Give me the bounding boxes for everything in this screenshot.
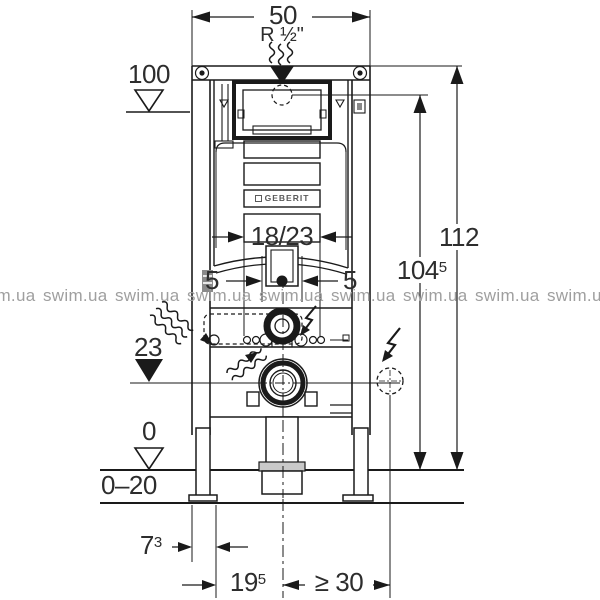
dim-supply-height-base: 104	[397, 255, 439, 285]
brand-logo: GEBERIT	[244, 190, 320, 207]
level-marker-0	[135, 448, 163, 469]
dim-supply-height-sup: 5	[439, 259, 447, 276]
drain-socket	[262, 471, 302, 494]
concealed-cistern	[214, 80, 365, 287]
watermark-text: swim.ua	[331, 287, 395, 304]
level-marker-23	[135, 359, 163, 382]
technical-drawing: 50 R ½" 100 112 1045 18/23 5 5 23 0 0–20…	[0, 0, 600, 600]
dim-leg-offset-base: 7	[140, 530, 154, 560]
water-connection-circle-icon	[272, 85, 292, 105]
left-foot	[189, 495, 217, 501]
dim-panel-label: 18/23	[246, 223, 318, 249]
valve-symbol-left	[220, 100, 228, 107]
drain-pipe	[266, 417, 298, 464]
level-markers	[135, 90, 163, 469]
dim-clearance-label: ≥ 30	[305, 569, 373, 595]
drain-socket-lip	[259, 462, 305, 471]
watermark-text: swim.ua	[403, 287, 467, 304]
electrical-connection-icon	[377, 328, 403, 394]
supply-thread-label: R ½"	[240, 25, 324, 45]
wc-outlet-bend	[247, 357, 317, 409]
brand-logo-text: GEBERIT	[265, 194, 310, 203]
dim-outlet-offset-sup: 5	[258, 571, 266, 588]
dim-zero-label: 0	[135, 418, 163, 444]
dim-100-label: 100	[121, 61, 177, 87]
electrical-bolt-icon	[300, 306, 316, 336]
dim-leg-offset-label: 73	[130, 532, 172, 558]
watermark-text: swim.ua	[547, 287, 600, 304]
watermark-text: swim.ua	[115, 287, 179, 304]
left-leg	[196, 428, 210, 496]
level-marker-100	[135, 90, 163, 111]
valve-symbol-right	[336, 100, 344, 107]
water-supply-elbow	[267, 311, 297, 341]
right-leg	[354, 428, 368, 496]
dim-outlet-offset-label: 195	[224, 569, 272, 595]
watermark-text: swim.ua	[0, 287, 35, 304]
dim-outlet-height-label: 23	[131, 334, 165, 360]
drain-connection	[259, 417, 305, 498]
fixing-point	[277, 276, 288, 287]
dim-supply-height-label: 1045	[391, 257, 453, 283]
brand-logo-square-icon	[255, 195, 262, 202]
dim-outlet-offset-base: 19	[230, 567, 258, 597]
dim-floor-range-label: 0–20	[101, 472, 191, 498]
watermark-text: swim.ua	[259, 287, 323, 304]
dim-total-height-label: 112	[434, 224, 484, 250]
watermark-text: swim.ua	[475, 287, 539, 304]
right-foot	[343, 495, 373, 501]
dim-leg-offset-sup: 3	[154, 534, 162, 551]
watermark-text: swim.ua	[43, 287, 107, 304]
watermark-text: swim.ua	[187, 287, 251, 304]
access-panel-slot	[244, 163, 320, 185]
